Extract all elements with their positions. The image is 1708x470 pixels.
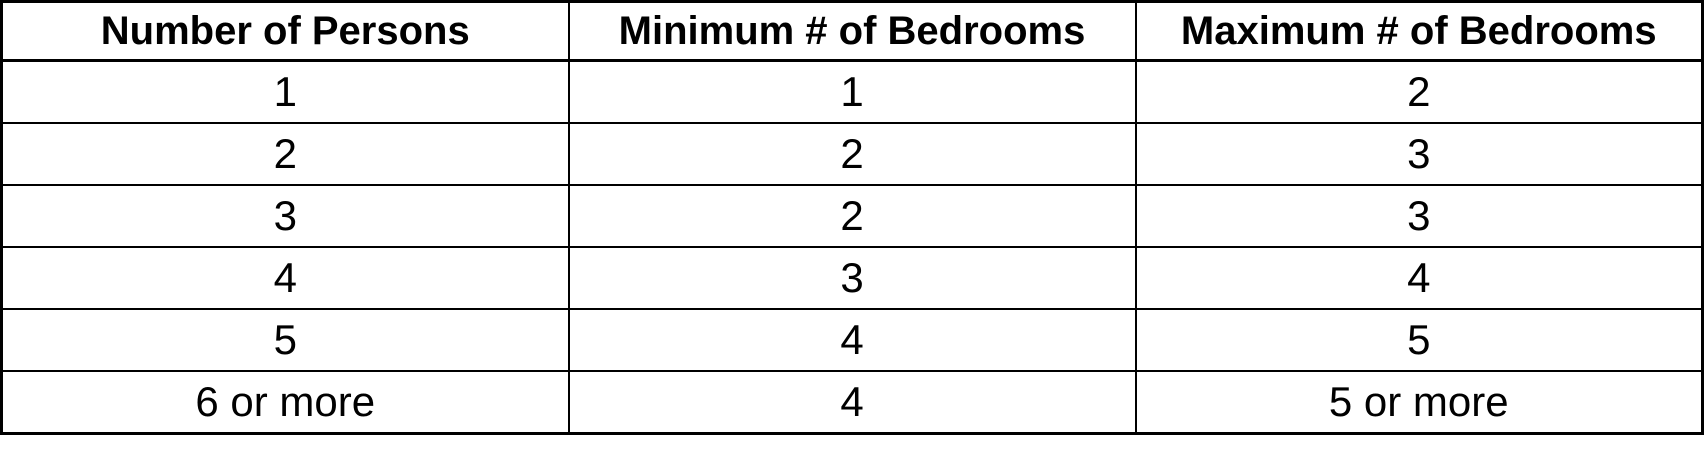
bedroom-occupancy-table: Number of Persons Minimum # of Bedrooms …	[0, 0, 1704, 435]
table-cell: 5 or more	[1136, 371, 1703, 434]
table-cell: 4	[2, 247, 569, 309]
table-cell: 5	[2, 309, 569, 371]
table-cell: 2	[569, 123, 1136, 185]
table-cell: 2	[569, 185, 1136, 247]
table-cell: 4	[569, 371, 1136, 434]
table-row: 223	[2, 123, 1703, 185]
table-header: Number of Persons Minimum # of Bedrooms …	[2, 2, 1703, 61]
table-cell: 3	[1136, 123, 1703, 185]
table-cell: 5	[1136, 309, 1703, 371]
table-cell: 4	[569, 309, 1136, 371]
column-header-number-of-persons: Number of Persons	[2, 2, 569, 61]
table-cell: 3	[1136, 185, 1703, 247]
table-row: 434	[2, 247, 1703, 309]
table-cell: 2	[1136, 61, 1703, 124]
table-cell: 6 or more	[2, 371, 569, 434]
column-header-minimum-bedrooms: Minimum # of Bedrooms	[569, 2, 1136, 61]
table-cell: 4	[1136, 247, 1703, 309]
page-canvas: Number of Persons Minimum # of Bedrooms …	[0, 0, 1708, 470]
table-cell: 3	[569, 247, 1136, 309]
table-row: 545	[2, 309, 1703, 371]
table-row: 6 or more45 or more	[2, 371, 1703, 434]
table-cell: 3	[2, 185, 569, 247]
header-row: Number of Persons Minimum # of Bedrooms …	[2, 2, 1703, 61]
table-row: 112	[2, 61, 1703, 124]
table-body: 1122233234345456 or more45 or more	[2, 61, 1703, 434]
table-cell: 1	[569, 61, 1136, 124]
table-row: 323	[2, 185, 1703, 247]
table-cell: 2	[2, 123, 569, 185]
column-header-maximum-bedrooms: Maximum # of Bedrooms	[1136, 2, 1703, 61]
table-cell: 1	[2, 61, 569, 124]
